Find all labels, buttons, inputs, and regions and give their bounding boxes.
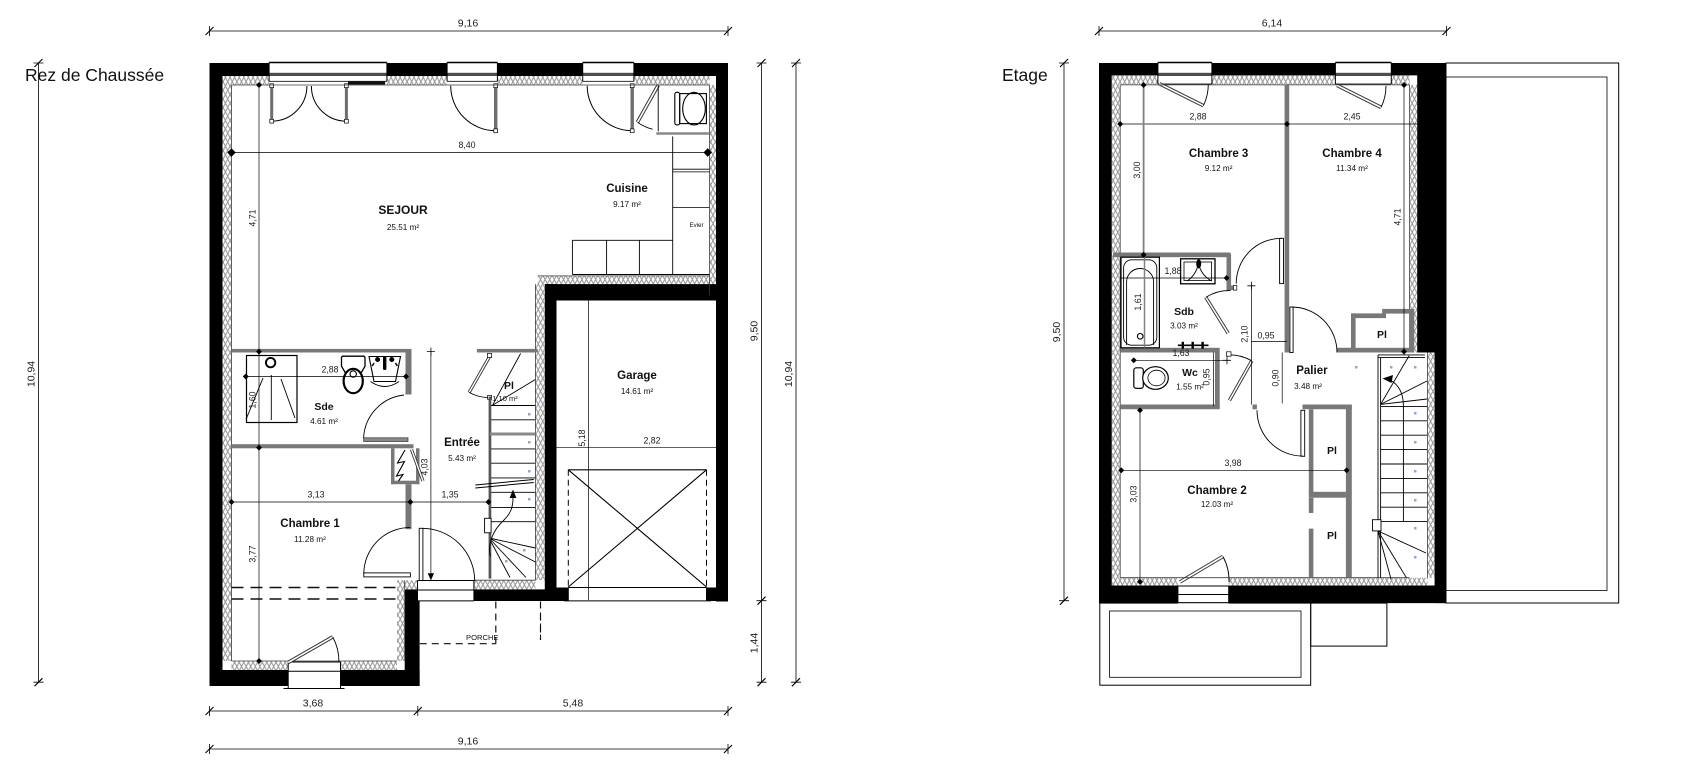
svg-text:3.03 m²: 3.03 m²: [1170, 322, 1198, 331]
svg-text:Sde: Sde: [314, 401, 333, 413]
svg-text:25.51 m²: 25.51 m²: [387, 223, 420, 232]
svg-text:4,71: 4,71: [248, 209, 258, 226]
svg-text:Chambre 1: Chambre 1: [280, 518, 340, 530]
svg-text:3,03: 3,03: [1128, 485, 1138, 502]
svg-text:1,88: 1,88: [1164, 266, 1181, 276]
svg-text:PORCHE: PORCHE: [466, 633, 499, 642]
svg-text:3.48 m²: 3.48 m²: [1294, 382, 1322, 391]
svg-text:1,44: 1,44: [749, 633, 761, 654]
svg-text:1.55 m²: 1.55 m²: [1176, 383, 1204, 392]
svg-text:Rez de Chaussée: Rez de Chaussée: [25, 65, 164, 85]
svg-text:1,61: 1,61: [1133, 293, 1143, 310]
svg-text:3,00: 3,00: [1132, 161, 1142, 178]
svg-text:0,90: 0,90: [1271, 369, 1281, 386]
svg-text:3,13: 3,13: [307, 490, 324, 500]
svg-text:5,48: 5,48: [563, 698, 584, 710]
svg-text:9,16: 9,16: [458, 736, 479, 748]
svg-text:10,94: 10,94: [783, 361, 795, 387]
svg-text:14.61 m²: 14.61 m²: [621, 387, 654, 396]
svg-text:Wc: Wc: [1182, 367, 1198, 379]
svg-text:9,50: 9,50: [1051, 322, 1063, 343]
svg-text:2,10: 2,10: [1240, 325, 1250, 342]
svg-text:10,94: 10,94: [26, 361, 38, 387]
svg-text:9.17 m²: 9.17 m²: [613, 200, 641, 209]
svg-text:4.61 m²: 4.61 m²: [310, 417, 338, 426]
svg-text:0,95: 0,95: [1257, 331, 1274, 341]
svg-text:2,88: 2,88: [1189, 112, 1206, 122]
svg-text:5.43 m²: 5.43 m²: [448, 454, 476, 463]
svg-text:11.28 m²: 11.28 m²: [294, 535, 326, 544]
svg-text:8,40: 8,40: [458, 140, 475, 150]
svg-text:9,50: 9,50: [749, 321, 761, 342]
svg-text:Pl: Pl: [1377, 329, 1387, 341]
svg-text:3,98: 3,98: [1224, 458, 1241, 468]
svg-text:Etage: Etage: [1002, 65, 1048, 85]
svg-text:Chambre 3: Chambre 3: [1189, 148, 1248, 160]
svg-text:4,03: 4,03: [420, 458, 430, 475]
svg-text:1,60: 1,60: [248, 391, 258, 408]
svg-text:Entrée: Entrée: [444, 437, 480, 449]
svg-text:1,35: 1,35: [441, 490, 458, 500]
svg-text:Evier: Evier: [689, 222, 703, 229]
svg-text:Pl: Pl: [1327, 530, 1337, 542]
svg-text:4,71: 4,71: [1392, 208, 1402, 225]
svg-text:Palier: Palier: [1296, 365, 1328, 377]
svg-text:9.12 m²: 9.12 m²: [1205, 164, 1233, 173]
svg-text:Chambre 2: Chambre 2: [1187, 485, 1246, 497]
svg-text:3,68: 3,68: [303, 698, 324, 710]
svg-text:2,45: 2,45: [1343, 112, 1360, 122]
svg-text:3,77: 3,77: [248, 545, 258, 562]
svg-text:6,14: 6,14: [1262, 18, 1283, 30]
svg-text:9,16: 9,16: [458, 18, 479, 30]
svg-text:Garage: Garage: [617, 370, 657, 382]
svg-text:1,63: 1,63: [1172, 348, 1189, 358]
svg-text:12.03 m²: 12.03 m²: [1201, 500, 1234, 509]
svg-text:Pl: Pl: [504, 380, 514, 392]
svg-text:1.10 m²: 1.10 m²: [492, 394, 518, 403]
svg-text:SEJOUR: SEJOUR: [378, 203, 428, 217]
svg-text:2,88: 2,88: [321, 365, 338, 375]
svg-text:Pl: Pl: [1327, 445, 1337, 457]
svg-text:2,82: 2,82: [643, 436, 660, 446]
svg-text:Sdb: Sdb: [1174, 306, 1194, 318]
svg-text:Cuisine: Cuisine: [606, 183, 648, 195]
svg-text:Chambre 4: Chambre 4: [1322, 148, 1382, 160]
svg-text:5,18: 5,18: [577, 429, 587, 446]
svg-text:11.34 m²: 11.34 m²: [1336, 164, 1368, 173]
